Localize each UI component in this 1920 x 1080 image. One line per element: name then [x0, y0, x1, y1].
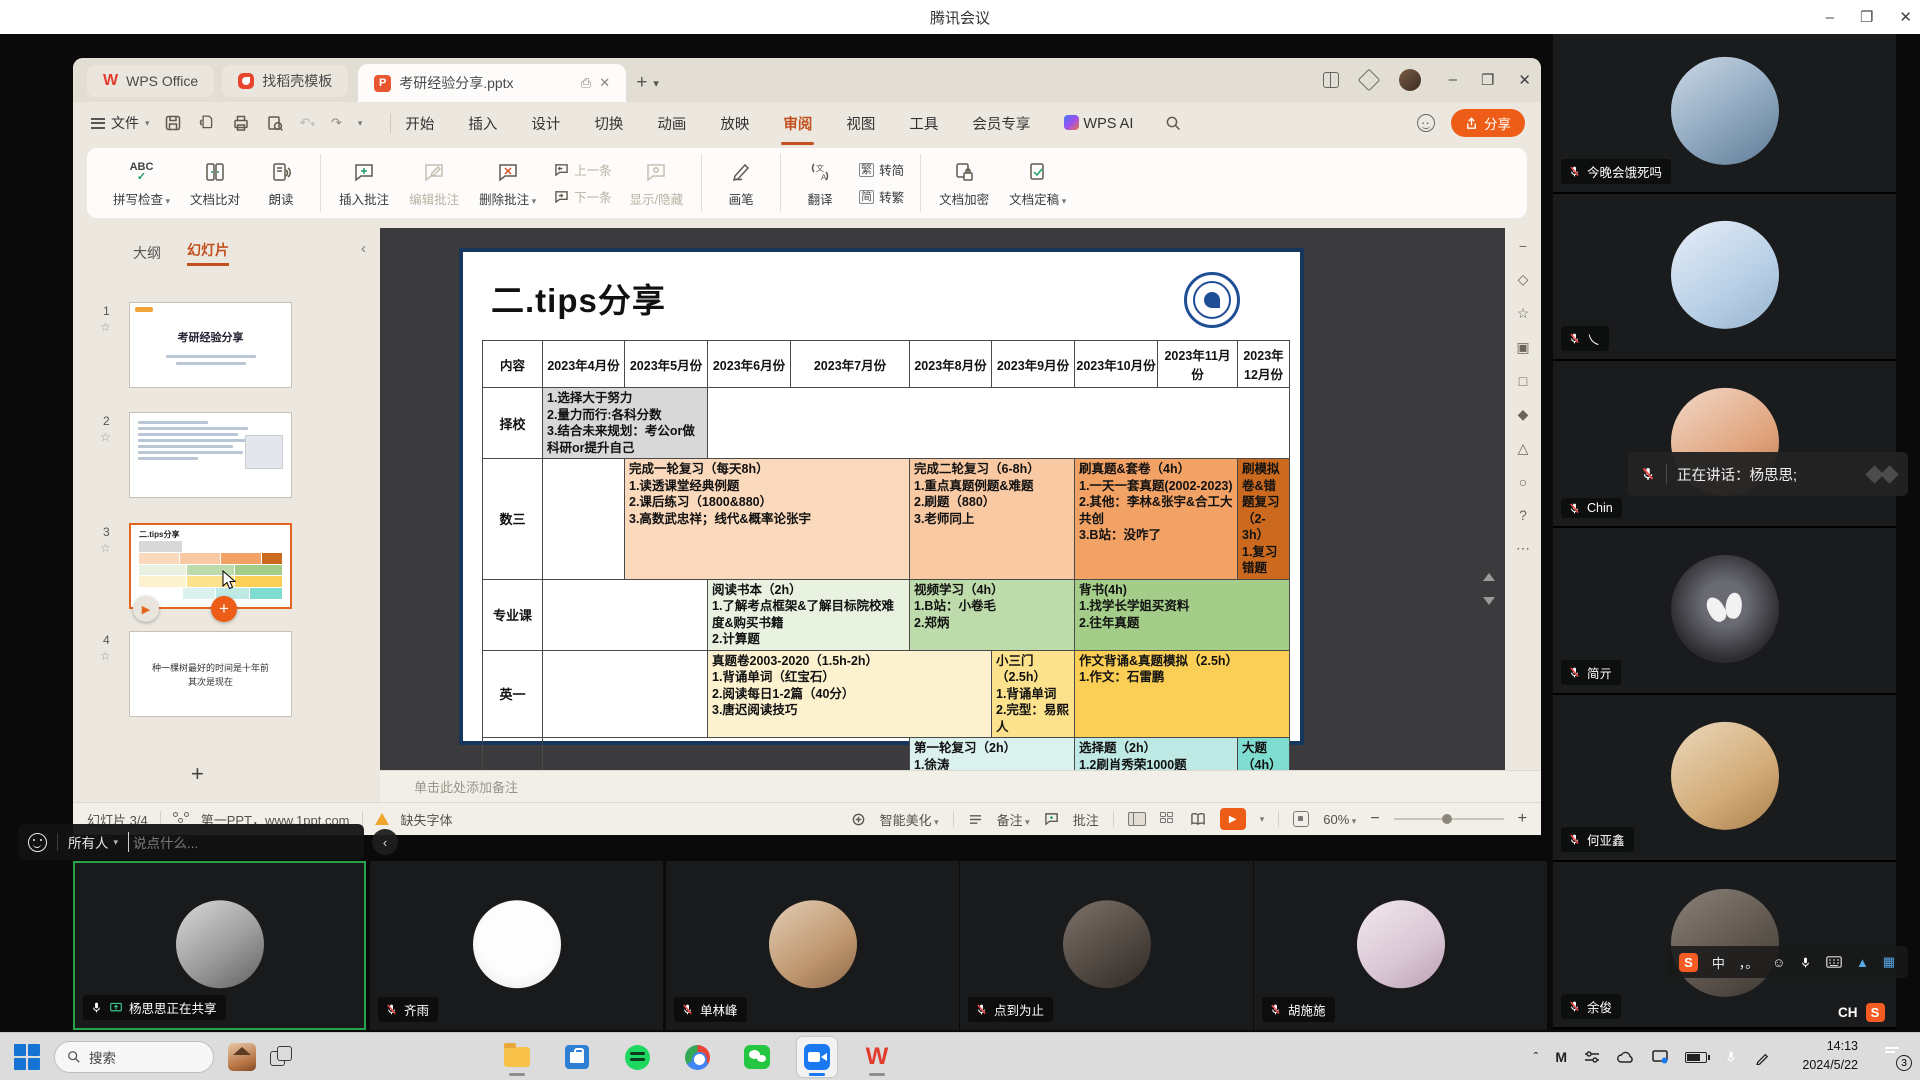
show-hide-comments-icon [645, 161, 667, 183]
review-ribbon: ABC✓ 拼写检查 ▾ 文档比对 朗读 插入批注 [73, 144, 1541, 228]
thumb1-title: 考研经验分享 [130, 329, 291, 345]
next-comment-button[interactable]: 下一条 [554, 187, 612, 206]
wps-tabbar: W WPS Office 找稻壳模板 P 考研经验分享.pptx ⎙ ✕ + ▾ [73, 58, 1541, 102]
slide-thumbnail-1[interactable]: 考研经验分享 [129, 302, 292, 388]
docer-icon [238, 73, 254, 89]
sogou-logo-icon[interactable]: S [1679, 953, 1698, 972]
chat-bar: 所有人▾ 说点什么... [18, 824, 364, 860]
strip-notes-icon[interactable]: ○ [1519, 474, 1527, 490]
mouse-cursor [222, 570, 237, 590]
quick-access-more-icon[interactable]: ▾ [358, 118, 363, 129]
video-tile-yangsisi[interactable]: 杨思思正在共享 [73, 861, 366, 1030]
read-aloud-button[interactable]: 朗读 [252, 157, 310, 210]
strip-more-icon[interactable]: ⋯ [1516, 540, 1530, 557]
participant-name-label: 今晚会饿死吗 [1561, 159, 1671, 184]
file-menu-button[interactable]: 文件 ▾ [91, 113, 150, 133]
file-menu-label: 文件 [111, 113, 139, 133]
slide-thumbnail-2[interactable] [129, 412, 292, 498]
wps-ai-icon [1064, 115, 1079, 130]
tray-battery-icon[interactable] [1685, 1052, 1707, 1063]
tencent-meeting-icon [804, 1044, 830, 1070]
comments-icon [1044, 812, 1059, 826]
insert-comment-button[interactable]: 插入批注 [331, 157, 397, 210]
clock-date: 2024/5/22 [1802, 1056, 1858, 1075]
wps-close-button[interactable]: ✕ [1518, 71, 1531, 89]
butterfly-avatar-art [1705, 591, 1744, 624]
hamburger-icon [91, 115, 105, 131]
beautify-button[interactable]: 智能美化 ▾ [880, 810, 939, 829]
comments-button[interactable]: 批注 [1073, 810, 1099, 829]
trad-badge-icon: 繁 [859, 163, 874, 177]
finalize-document-icon [1027, 161, 1049, 183]
play-from-slide-button[interactable]: ▶ [133, 596, 159, 622]
svg-text:文: 文 [816, 163, 824, 173]
chat-input[interactable]: 说点什么... [128, 832, 354, 852]
table-row: 数三 完成一轮复习（每天8h） 1.读透课堂经典例题 2.课后练习（1800&8… [483, 459, 1290, 580]
current-slide[interactable]: 二.tips分享 内容2023年4月份2023年5月份2023年6月份2023年… [459, 248, 1304, 745]
wps-window: W WPS Office 找稻壳模板 P 考研经验分享.pptx ⎙ ✕ + ▾ [73, 58, 1541, 835]
spell-check-button[interactable]: ABC✓ 拼写检查 ▾ [105, 157, 178, 210]
table-row: 专业课 阅读书本（2h） 1.了解考点框架&了解目标院校难度&购买书籍 2.计算… [483, 579, 1290, 650]
star-icon[interactable]: ☆ [100, 430, 111, 444]
projection-icon[interactable]: ⎙ [581, 75, 591, 91]
panel-collapse-icon[interactable]: ‹ [361, 240, 366, 257]
wps-maximize-button[interactable]: ❐ [1481, 71, 1494, 89]
mic-muted-icon [1640, 466, 1656, 482]
avatar [176, 900, 264, 988]
strip-chart-icon[interactable]: △ [1518, 440, 1529, 457]
avatar [1063, 900, 1151, 988]
wps-menubar: 文件 ▾ ↶▾ ↷ ▾ 开始 插入 设计 切换 动画 放映 审阅 [73, 102, 1541, 144]
thumb3-mini-table [139, 541, 282, 599]
slide-thumbnail-3-selected[interactable]: 二.tips分享 [129, 523, 292, 609]
notification-badge: 3 [1896, 1055, 1912, 1071]
app-microsoft-store[interactable] [557, 1037, 597, 1077]
side-tile-3[interactable]: Chin [1553, 361, 1896, 528]
emoji-icon[interactable] [28, 833, 47, 852]
search-placeholder: 搜索 [89, 1047, 116, 1067]
share-button[interactable]: 分享 [1451, 109, 1525, 137]
mic-muted-icon [1568, 332, 1581, 345]
slideshow-play-button[interactable]: ▶ [1220, 808, 1246, 830]
mic-muted-icon [681, 1003, 694, 1016]
menu-items: 开始 插入 设计 切换 动画 放映 审阅 视图 工具 会员专享 WPS AI [403, 109, 1182, 138]
star-icon[interactable]: ☆ [100, 541, 111, 555]
ime-voice-icon[interactable] [1799, 956, 1812, 969]
prev-comment-button[interactable]: 上一条 [554, 160, 612, 179]
tab-close-icon[interactable]: ✕ [599, 75, 610, 91]
university-logo-icon [1184, 272, 1240, 328]
tab-docer-templates[interactable]: 找稻壳模板 [222, 65, 348, 97]
tab-wps-home[interactable]: W WPS Office [87, 65, 214, 97]
beautify-icon [851, 812, 866, 827]
search-icon [67, 1050, 81, 1064]
notification-center-button[interactable]: 3 [1882, 1043, 1910, 1069]
thumb4-text: 种一棵树最好的时间是十年前 其次是现在 [130, 662, 291, 689]
watermark-icon [1868, 468, 1896, 481]
tab-list-caret-icon[interactable]: ▾ [653, 77, 659, 90]
simp-to-trad-button[interactable]: 简 转繁 [859, 187, 904, 206]
add-slide-button[interactable]: + [191, 761, 204, 787]
app-tencent-meeting[interactable] [797, 1037, 837, 1077]
delete-comment-icon [497, 161, 519, 183]
participant-name-label: 简亓 [1561, 660, 1621, 685]
participant-name-label: 单林峰 [674, 997, 747, 1022]
meeting-titlebar: 腾讯会议 – ❐ ✕ [0, 0, 1920, 34]
menu-view[interactable]: 视图 [844, 109, 877, 138]
zoom-in-button[interactable]: + [1518, 810, 1527, 828]
avatar [1671, 57, 1779, 165]
music-app-icon [625, 1045, 650, 1070]
ime-language-indicator[interactable]: CH S [1838, 1003, 1885, 1022]
slide-editor: 二.tips分享 内容2023年4月份2023年5月份2023年6月份2023年… [380, 228, 1505, 770]
menu-tools[interactable]: 工具 [907, 109, 940, 138]
strip-beautify-icon[interactable]: ◇ [1518, 271, 1529, 288]
wps-icon: W [866, 1045, 889, 1069]
avatar [1671, 220, 1779, 328]
pen-icon [730, 161, 752, 183]
menu-membership[interactable]: 会员专享 [970, 109, 1032, 138]
participant-name-label: 齐雨 [378, 997, 438, 1022]
next-slide-arrow[interactable] [1483, 597, 1495, 605]
tips-schedule-table: 内容2023年4月份2023年5月份2023年6月份2023年7月份2023年8… [482, 340, 1290, 835]
app-wps[interactable]: W [857, 1037, 897, 1077]
edit-comment-icon [423, 161, 445, 183]
ime-emoji-icon[interactable]: ☺ [1772, 955, 1785, 970]
taskbar-search[interactable]: 搜索 [54, 1041, 214, 1073]
warning-icon [375, 813, 389, 825]
menu-transition[interactable]: 切换 [592, 109, 625, 138]
chat-audience-selector[interactable]: 所有人▾ [68, 832, 118, 852]
menu-animation[interactable]: 动画 [655, 109, 688, 138]
doc-compare-button[interactable]: 文档比对 [182, 157, 248, 210]
participant-name-label: 胡施施 [1262, 997, 1335, 1022]
tab-document-label: 考研经验分享.pptx [399, 73, 513, 93]
star-icon[interactable]: ☆ [100, 649, 111, 663]
participant-name-label: 何亚鑫 [1561, 827, 1634, 852]
strip-star-icon[interactable]: ☆ [1517, 305, 1530, 322]
wps-minimize-button[interactable]: – [1449, 71, 1457, 89]
wps-logo-icon: W [103, 72, 118, 90]
app-chrome[interactable] [677, 1037, 717, 1077]
tray-mic-icon[interactable] [1724, 1050, 1738, 1064]
ime-mode-toggle[interactable]: 中 [1712, 953, 1725, 972]
translate-icon: 文A [809, 161, 831, 183]
avatar [1671, 554, 1779, 662]
menu-review[interactable]: 审阅 [781, 109, 814, 138]
workspace-icon[interactable] [1357, 69, 1380, 92]
ime-keyboard-icon[interactable] [1826, 956, 1842, 968]
windows-taskbar: 搜索 W ˆ M 14:13 2024/5/22 [0, 1032, 1920, 1080]
finalize-document-button[interactable]: 文档定稿 ▾ [1001, 157, 1074, 210]
tray-pen-icon[interactable] [1755, 1050, 1770, 1065]
edit-comment-button[interactable]: 编辑批注 [401, 157, 467, 210]
video-tile-diandaoweizhi[interactable]: 点到为止 [960, 861, 1253, 1030]
account-avatar[interactable] [1399, 69, 1421, 91]
video-tile-qiyu[interactable]: 齐雨 [370, 861, 663, 1030]
normal-view-icon[interactable] [1128, 812, 1146, 826]
strip-collapse-icon[interactable]: − [1519, 238, 1527, 254]
thumb2-table-block [245, 435, 283, 469]
ime-language-label: CH [1838, 1005, 1858, 1020]
missing-font-warning[interactable]: 缺失字体 [401, 810, 453, 829]
slide-sorter-view-icon[interactable] [1160, 812, 1176, 826]
slide-number: 2 [103, 414, 110, 428]
table-row: 英一 真题卷2003-2020（1.5h-2h） 1.背诵单词（红宝石） 2.阅… [483, 650, 1290, 738]
widget-icon[interactable] [228, 1043, 256, 1071]
microsoft-store-icon [565, 1045, 589, 1069]
tab-document[interactable]: P 考研经验分享.pptx ⎙ ✕ [358, 64, 626, 102]
start-button[interactable] [14, 1044, 40, 1070]
zoom-level[interactable]: 60% ▾ [1323, 812, 1356, 827]
participant-name-label: 杨思思正在共享 [83, 995, 226, 1020]
table-header-row: 内容2023年4月份2023年5月份2023年6月份2023年7月份2023年8… [483, 341, 1290, 388]
notes-placeholder: 单击此处添加备注 [414, 777, 518, 796]
print-icon[interactable] [232, 114, 250, 132]
slide-thumbnail-4[interactable]: 种一棵树最好的时间是十年前 其次是现在 [129, 631, 292, 717]
ime-punctuation-toggle[interactable]: ，。 [1739, 953, 1759, 972]
app-music[interactable] [617, 1037, 657, 1077]
tab-outline[interactable]: 大纲 [133, 243, 161, 263]
mic-muted-icon [1568, 1000, 1581, 1013]
taskbar-clock[interactable]: 14:13 2024/5/22 [1802, 1037, 1858, 1076]
notes-toggle-button[interactable]: 备注 ▾ [997, 810, 1030, 829]
menu-design[interactable]: 设计 [529, 109, 562, 138]
zoom-out-button[interactable]: − [1370, 810, 1379, 828]
slide-number: 4 [103, 633, 110, 647]
tray-cloud-sync-icon[interactable] [1617, 1051, 1635, 1064]
undo-icon[interactable]: ↶▾ [300, 115, 315, 131]
screen: 腾讯会议 – ❐ ✕ W WPS Office 找稻壳模板 P 考研经验分享.p… [0, 0, 1920, 1080]
participant-name-label: Chin [1561, 498, 1622, 518]
slide-title: 二.tips分享 [491, 274, 666, 322]
clock-time: 14:13 [1802, 1037, 1858, 1056]
mic-muted-icon [1568, 666, 1581, 679]
avatar [1357, 900, 1445, 988]
thumb3-title: 二.tips分享 [139, 529, 290, 540]
thumb1-logo-bar [135, 307, 153, 312]
ime-skin-icon[interactable]: ▲ [1856, 955, 1869, 970]
task-view-button[interactable] [270, 1046, 294, 1068]
side-tile-4[interactable]: 简亓 [1553, 528, 1896, 695]
save-icon[interactable] [164, 114, 182, 132]
read-aloud-icon [270, 161, 292, 183]
ime-toolbar: S 中 ，。 ☺ ▲ ▦ [1666, 946, 1908, 978]
avatar [473, 900, 561, 988]
play-options-caret[interactable]: ▾ [1260, 814, 1265, 825]
file-explorer-icon [504, 1047, 530, 1067]
strip-animation-icon[interactable]: ◆ [1518, 406, 1529, 423]
redo-icon[interactable]: ↷ [331, 115, 342, 131]
tray-display-icon[interactable] [1652, 1050, 1668, 1064]
wechat-icon [744, 1045, 770, 1069]
show-hide-comments-button[interactable]: 显示/隐藏 [622, 157, 691, 210]
mic-muted-icon [385, 1003, 398, 1016]
participant-name-label: 点到为止 [968, 997, 1053, 1022]
mic-muted-icon [975, 1003, 988, 1016]
delete-comment-button[interactable]: 删除批注 ▾ [471, 157, 544, 210]
slides-panel: 大纲 幻灯片 ‹ 1 ☆ 考研经验分享 2 ☆ [73, 228, 380, 770]
new-tab-button[interactable]: + [636, 72, 647, 94]
new-slide-button[interactable]: + [211, 596, 237, 622]
strip-design-icon[interactable]: □ [1519, 373, 1527, 389]
fit-slide-icon[interactable] [1293, 811, 1309, 827]
next-comment-icon [554, 190, 569, 203]
tab-home-label: WPS Office [126, 73, 198, 89]
table-row: 择校 1.选择大于努力 2.量力而行:各科分数 3.结合未来规划：考公or做科研… [483, 388, 1290, 459]
ppt-file-icon: P [374, 75, 391, 92]
chrome-icon [685, 1045, 710, 1070]
speaking-toast: 正在讲话：杨思思; [1628, 452, 1908, 496]
doc-compare-icon [204, 161, 226, 183]
participant-name-label: 乀 [1561, 326, 1609, 351]
chat-collapse-button[interactable]: ‹ [372, 829, 398, 855]
side-tile-1[interactable]: 今晚会饿死吗 [1553, 34, 1896, 194]
export-icon[interactable] [198, 114, 216, 132]
strip-help-icon[interactable]: ? [1519, 507, 1527, 523]
menu-home[interactable]: 开始 [403, 109, 436, 138]
zoom-slider[interactable] [1394, 818, 1504, 820]
meeting-minimize-button[interactable]: – [1826, 9, 1834, 26]
side-tile-5[interactable]: 何亚鑫 [1553, 695, 1896, 862]
insert-comment-icon [353, 161, 375, 183]
meeting-title: 腾讯会议 [930, 7, 990, 28]
notes-bar[interactable]: 单击此处添加备注 [380, 770, 1541, 802]
notes-icon [968, 813, 983, 826]
mic-muted-icon [1568, 502, 1581, 515]
tab-docer-label: 找稻壳模板 [262, 71, 332, 91]
app-file-explorer[interactable] [497, 1037, 537, 1077]
encrypt-document-button[interactable]: 文档加密 [931, 157, 997, 210]
tray-expand-icon[interactable]: ˆ [1534, 1049, 1539, 1065]
strip-layout-icon[interactable]: ▣ [1516, 339, 1529, 356]
menu-slideshow[interactable]: 放映 [718, 109, 751, 138]
reading-view-icon[interactable] [1190, 812, 1206, 826]
mic-on-icon [90, 1001, 103, 1014]
meeting-close-button[interactable]: ✕ [1899, 8, 1912, 26]
mic-muted-icon [1568, 833, 1581, 846]
star-icon[interactable]: ☆ [100, 320, 111, 334]
share-button-label: 分享 [1484, 113, 1511, 133]
app-wechat[interactable] [737, 1037, 777, 1077]
mic-muted-icon [1568, 165, 1581, 178]
prev-comment-icon [554, 163, 569, 176]
tray-settings-sliders-icon[interactable] [1584, 1050, 1600, 1064]
right-tool-strip: − ◇ ☆ ▣ □ ◆ △ ○ ? ⋯ [1505, 228, 1541, 770]
tab-slides[interactable]: 幻灯片 [187, 240, 229, 266]
split-view-icon[interactable] [1323, 72, 1339, 88]
ime-toolbox-icon[interactable]: ▦ [1883, 954, 1895, 970]
video-tile-hushishi[interactable]: 胡施施 [1254, 861, 1547, 1030]
feedback-smiley-icon[interactable] [1417, 114, 1435, 132]
share-arrow-icon [1465, 117, 1478, 130]
spell-check-icon: ABC✓ [130, 162, 154, 182]
svg-text:A: A [821, 173, 827, 182]
avatar [1671, 888, 1779, 996]
menu-wps-ai[interactable]: WPS AI [1062, 111, 1135, 136]
avatar [769, 900, 857, 988]
previous-slide-arrow[interactable] [1483, 573, 1495, 581]
screen-share-icon [109, 1001, 123, 1014]
slide-number: 1 [103, 304, 110, 318]
slide-number: 3 [103, 525, 110, 539]
simp-badge-icon: 简 [859, 190, 874, 204]
participant-name-label: 余俊 [1561, 994, 1621, 1019]
pen-button[interactable]: 画笔 [712, 157, 770, 210]
avatar [1671, 721, 1779, 829]
menu-insert[interactable]: 插入 [466, 109, 499, 138]
meeting-maximize-button[interactable]: ❐ [1860, 8, 1873, 26]
side-tile-2[interactable]: 乀 [1553, 194, 1896, 361]
trad-to-simp-button[interactable]: 繁 转简 [859, 160, 904, 179]
translate-button[interactable]: 文A 翻译 [791, 157, 849, 210]
speaking-toast-text: 正在讲话：杨思思; [1677, 464, 1797, 485]
tray-m-app-icon[interactable]: M [1555, 1049, 1567, 1065]
encrypt-document-icon [953, 161, 975, 183]
mic-muted-icon [1269, 1003, 1282, 1016]
zoom-slider-handle[interactable] [1442, 814, 1452, 824]
sogou-tray-icon[interactable]: S [1866, 1003, 1885, 1022]
search-icon[interactable] [1165, 115, 1182, 132]
video-tile-shanlinfeng[interactable]: 单林峰 [666, 861, 959, 1030]
print-preview-icon[interactable] [266, 114, 284, 132]
